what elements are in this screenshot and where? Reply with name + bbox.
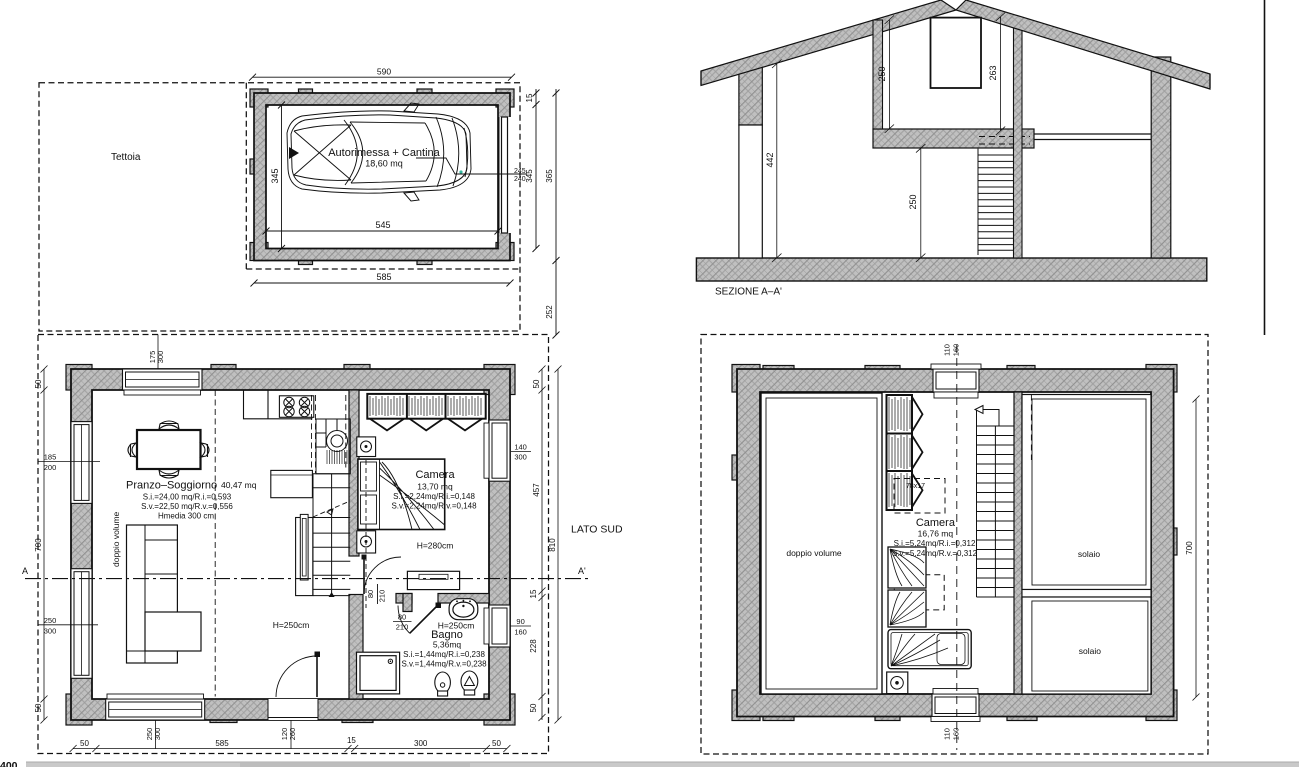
svg-text:300: 300 [514, 453, 527, 462]
svg-text:80: 80 [398, 613, 406, 622]
svg-text:260: 260 [288, 728, 297, 741]
svg-text:300: 300 [156, 351, 165, 364]
svg-text:140: 140 [514, 442, 527, 451]
svg-text:S.v.=1,44mq/R.v.=0,238: S.v.=1,44mq/R.v.=0,238 [401, 660, 487, 669]
svg-text:185: 185 [44, 453, 57, 462]
svg-text:15: 15 [525, 93, 534, 102]
svg-text:doppio volume: doppio volume [111, 511, 121, 567]
svg-text:365: 365 [545, 169, 554, 183]
svg-text:80: 80 [366, 590, 375, 598]
svg-text:300: 300 [153, 728, 162, 741]
svg-text:590: 590 [377, 67, 391, 77]
svg-text:228: 228 [529, 639, 538, 653]
svg-text:Hmedia 300 cm: Hmedia 300 cm [158, 512, 214, 521]
svg-text:16,76 mq: 16,76 mq [918, 529, 954, 539]
svg-text:345: 345 [525, 169, 534, 183]
svg-text:Camera: Camera [916, 517, 956, 529]
svg-text:SEZIONE A–A': SEZIONE A–A' [715, 287, 782, 298]
svg-text:LATO SUD: LATO SUD [571, 524, 623, 536]
svg-text:585: 585 [376, 272, 391, 282]
svg-text:H=280cm: H=280cm [417, 541, 454, 551]
svg-text:50: 50 [80, 739, 89, 748]
svg-text:210: 210 [396, 623, 409, 632]
svg-text:40,47 mq: 40,47 mq [221, 480, 257, 490]
svg-text:A: A [22, 566, 28, 576]
svg-text:H=250cm: H=250cm [273, 620, 310, 630]
svg-text:13,70 mq: 13,70 mq [417, 482, 453, 492]
svg-text:15: 15 [529, 589, 538, 598]
svg-text:5,36mq: 5,36mq [433, 640, 462, 650]
svg-text:78x17: 78x17 [906, 483, 925, 490]
svg-text:doppio volume: doppio volume [786, 548, 842, 558]
svg-text:solaio: solaio [1079, 646, 1101, 656]
svg-text:50: 50 [492, 739, 501, 748]
svg-text:50: 50 [532, 379, 541, 388]
svg-text:solaio: solaio [1078, 549, 1100, 559]
svg-text:Camera: Camera [415, 469, 455, 481]
svg-text:15: 15 [347, 736, 356, 745]
svg-text:700: 700 [1185, 541, 1194, 555]
svg-text:Autorimessa + Cantina: Autorimessa + Cantina [328, 147, 440, 159]
svg-text:50: 50 [529, 703, 538, 712]
svg-text:110: 110 [943, 728, 952, 740]
svg-text:300: 300 [414, 739, 428, 748]
svg-text:345: 345 [270, 168, 280, 183]
svg-text:Tettoia: Tettoia [111, 152, 141, 163]
svg-text:250: 250 [908, 194, 918, 209]
svg-text:810: 810 [548, 538, 557, 552]
svg-text:S.i.=2,24mq/R.i.=0,148: S.i.=2,24mq/R.i.=0,148 [393, 492, 475, 501]
svg-text:545: 545 [375, 220, 390, 230]
svg-text:400: 400 [0, 760, 18, 767]
svg-text:250: 250 [44, 616, 57, 625]
svg-text:442: 442 [765, 152, 775, 167]
svg-text:50: 50 [34, 703, 43, 712]
svg-text:S.i.=5,24mq/R.i.=0,312: S.i.=5,24mq/R.i.=0,312 [894, 539, 976, 548]
svg-text:585: 585 [215, 739, 229, 748]
svg-text:210: 210 [378, 590, 387, 603]
svg-text:252: 252 [545, 305, 554, 319]
svg-text:S.i.=1,44mq/R.i.=0,238: S.i.=1,44mq/R.i.=0,238 [403, 650, 485, 659]
svg-text:160: 160 [952, 344, 961, 357]
svg-text:90: 90 [516, 617, 524, 626]
svg-text:50: 50 [34, 379, 43, 388]
svg-text:S.v.=5,24mq/R.v.=0,312: S.v.=5,24mq/R.v.=0,312 [892, 549, 978, 558]
svg-text:S.v.=22,50 mq/R.v.=0,556: S.v.=22,50 mq/R.v.=0,556 [141, 502, 233, 511]
svg-text:300: 300 [44, 626, 57, 635]
svg-text:A': A' [578, 566, 586, 576]
svg-text:160: 160 [514, 627, 527, 636]
svg-text:18,60 mq: 18,60 mq [365, 159, 403, 169]
svg-text:200: 200 [44, 463, 57, 472]
svg-text:457: 457 [532, 483, 541, 497]
svg-text:160: 160 [952, 728, 961, 741]
svg-text:S.i.=24,00 mq/R.i.=0,593: S.i.=24,00 mq/R.i.=0,593 [143, 493, 232, 502]
svg-text:Pranzo–Soggiorno: Pranzo–Soggiorno [126, 480, 217, 492]
svg-text:110: 110 [943, 344, 952, 356]
svg-text:250: 250 [877, 66, 887, 81]
svg-text:700: 700 [34, 538, 43, 552]
svg-text:S.v.=2,24mq/R.v.=0,148: S.v.=2,24mq/R.v.=0,148 [391, 502, 477, 511]
svg-text:263: 263 [988, 65, 998, 80]
